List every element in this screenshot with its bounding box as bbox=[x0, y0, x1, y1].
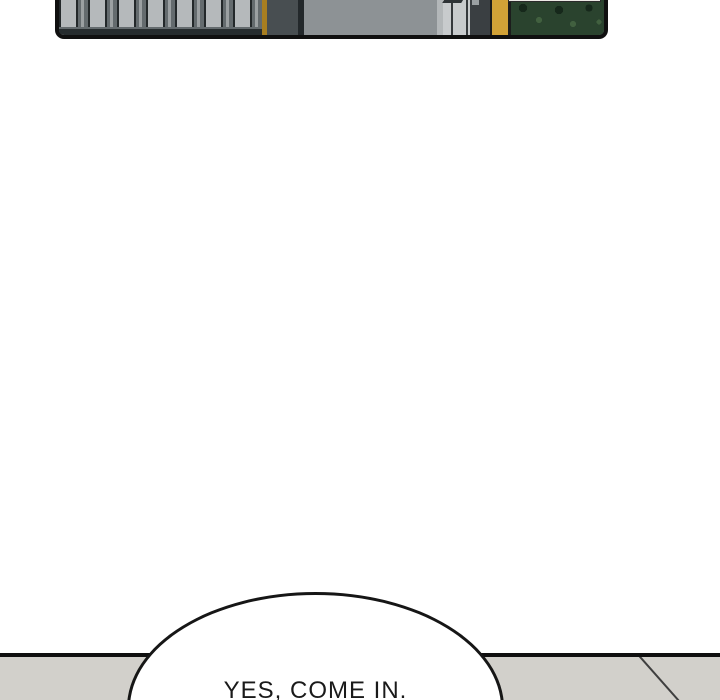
yellow-gate-pole bbox=[490, 0, 511, 35]
top-comic-panel bbox=[55, 0, 608, 39]
dark-gate-post bbox=[470, 0, 490, 35]
gray-wall bbox=[304, 0, 437, 35]
dark-gate-column bbox=[267, 0, 301, 35]
booth-roof-slant bbox=[442, 0, 467, 3]
trees-foliage bbox=[511, 0, 604, 35]
comic-page: YES, COME IN. bbox=[0, 0, 720, 700]
metal-fence bbox=[59, 0, 262, 35]
guard-booth bbox=[443, 0, 470, 35]
speech-bubble: YES, COME IN. bbox=[127, 592, 504, 700]
barrier-arm bbox=[508, 0, 601, 2]
gate-post-highlight bbox=[472, 0, 479, 5]
speech-bubble-text: YES, COME IN. bbox=[130, 679, 501, 700]
factory-gate-scene bbox=[59, 0, 604, 35]
